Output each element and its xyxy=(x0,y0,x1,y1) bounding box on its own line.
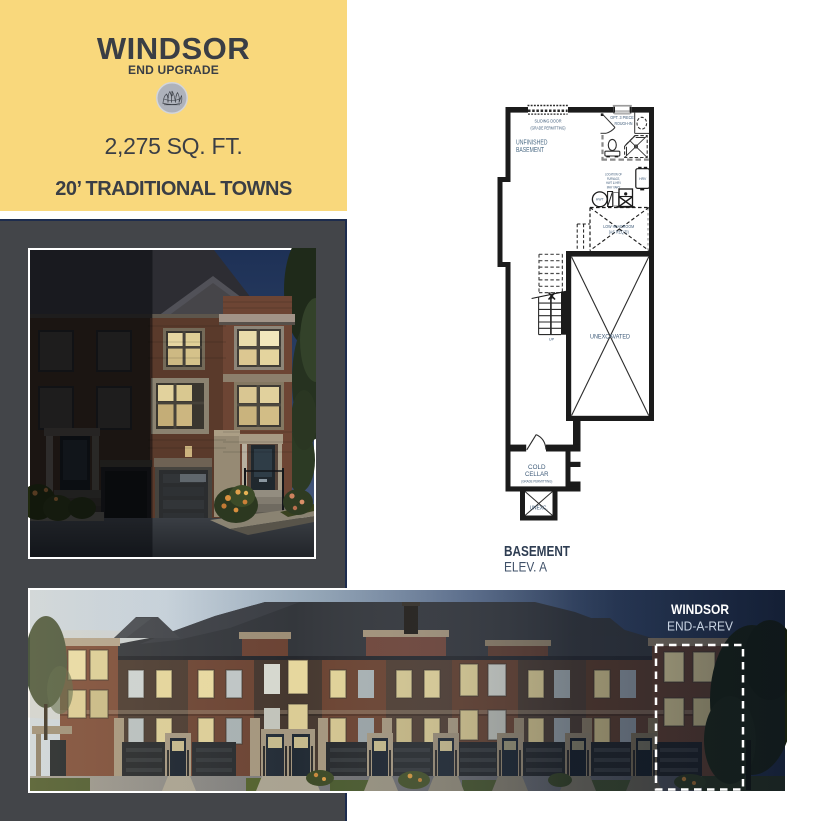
svg-text:UNFINISHED: UNFINISHED xyxy=(516,140,548,147)
svg-text:UNEXCAVATED: UNEXCAVATED xyxy=(590,334,630,341)
svg-text:(GRADE PERMITTING): (GRADE PERMITTING) xyxy=(521,479,553,484)
svg-text:CELLAR: CELLAR xyxy=(525,471,549,478)
svg-text:(AS REQ’D): (AS REQ’D) xyxy=(609,229,629,234)
svg-text:MAY VARY: MAY VARY xyxy=(607,186,621,190)
svg-text:ROUGH-IN: ROUGH-IN xyxy=(615,121,633,126)
svg-text:UNEXC.: UNEXC. xyxy=(530,506,548,512)
svg-text:HRV: HRV xyxy=(639,177,647,181)
svg-text:UP: UP xyxy=(549,338,555,342)
svg-text:ELEV. A: ELEV. A xyxy=(504,560,547,575)
svg-text:LOCATION OF: LOCATION OF xyxy=(605,172,623,176)
svg-text:BASEMENT: BASEMENT xyxy=(516,147,545,154)
svg-text:HWT & HRV: HWT & HRV xyxy=(606,181,621,185)
svg-text:WINDSOR: WINDSOR xyxy=(671,601,729,617)
svg-text:SLIDING DOOR: SLIDING DOOR xyxy=(535,119,562,124)
svg-text:OPT. 3 PIECE: OPT. 3 PIECE xyxy=(610,115,634,120)
svg-text:BASEMENT: BASEMENT xyxy=(504,544,570,560)
svg-text:(GRADE PERMITTING): (GRADE PERMITTING) xyxy=(531,125,566,130)
svg-text:HWT: HWT xyxy=(596,198,604,202)
svg-text:END-A-REV: END-A-REV xyxy=(667,620,734,634)
svg-text:LOW HEADROOM: LOW HEADROOM xyxy=(603,224,634,229)
svg-text:COLD: COLD xyxy=(528,464,546,471)
svg-text:FURNACE,: FURNACE, xyxy=(607,177,620,181)
